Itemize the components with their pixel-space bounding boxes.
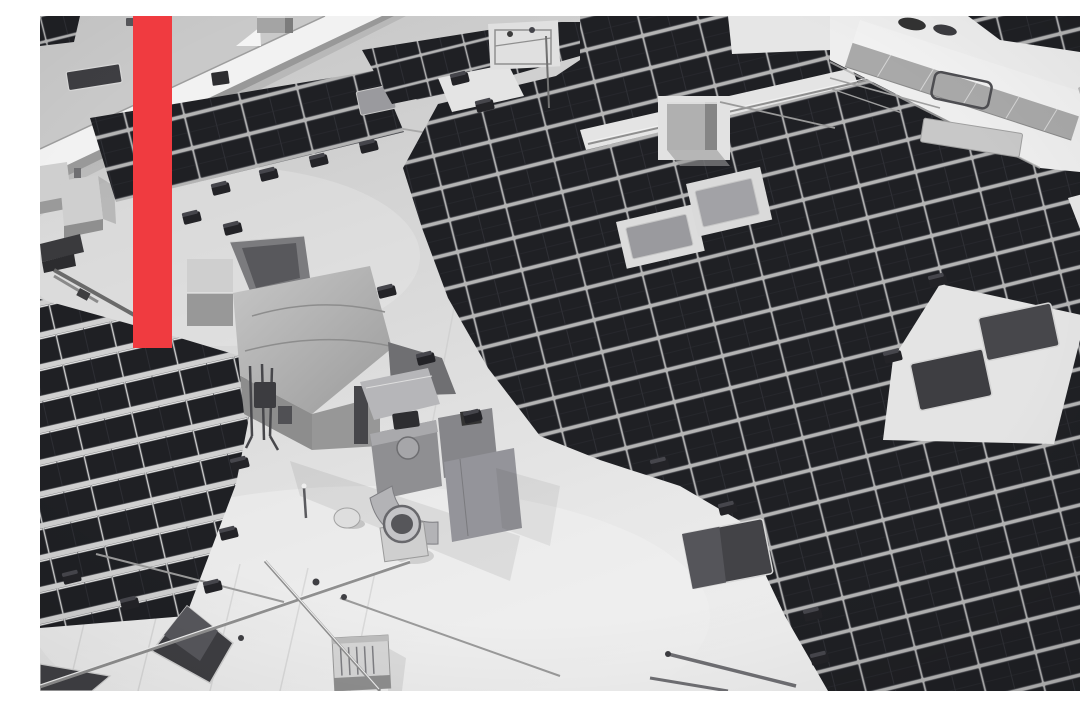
aerial-photo (40, 16, 1080, 691)
photo-vignette (40, 16, 1080, 691)
red-accent-bar (133, 16, 172, 348)
rooftop-aerial-photo-svg (40, 16, 1080, 691)
